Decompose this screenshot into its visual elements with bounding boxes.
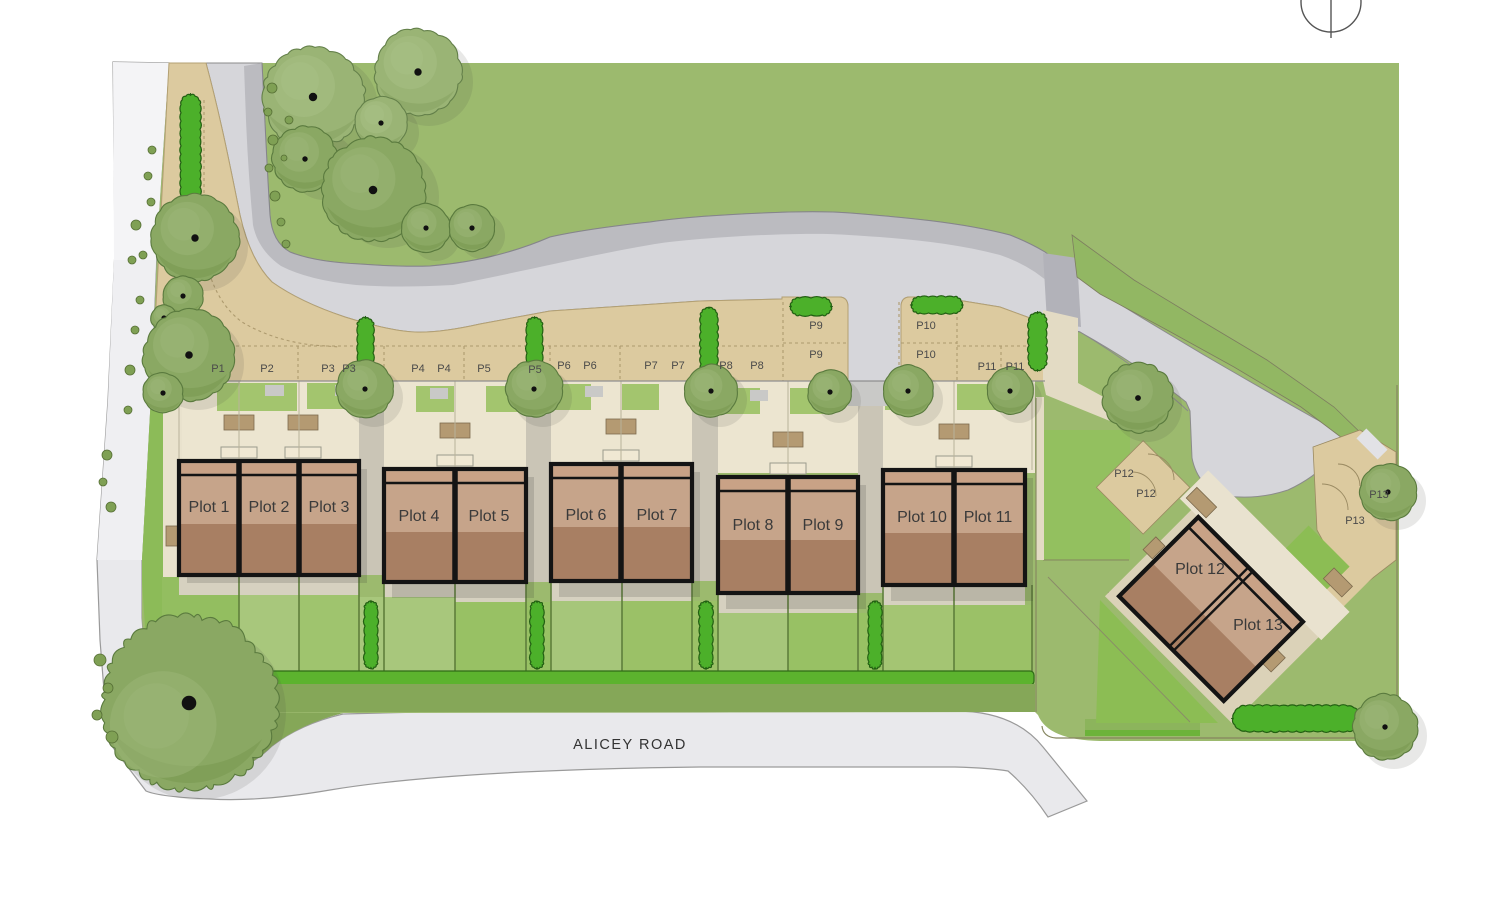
svg-text:P5: P5 — [477, 363, 490, 375]
svg-text:Plot 9: Plot 9 — [803, 517, 844, 534]
svg-text:Plot 2: Plot 2 — [249, 499, 290, 516]
svg-text:Plot 13: Plot 13 — [1233, 617, 1283, 634]
svg-text:Plot 5: Plot 5 — [469, 508, 510, 525]
svg-text:P4: P4 — [411, 363, 424, 375]
svg-text:P11: P11 — [978, 361, 997, 373]
svg-text:P11: P11 — [1006, 361, 1025, 373]
svg-text:P6: P6 — [557, 360, 570, 372]
svg-text:Plot 4: Plot 4 — [399, 508, 440, 525]
svg-text:P3: P3 — [321, 363, 334, 375]
svg-text:P12: P12 — [1136, 488, 1156, 500]
svg-text:P8: P8 — [719, 360, 732, 372]
svg-text:Plot 6: Plot 6 — [566, 507, 607, 524]
svg-text:P8: P8 — [750, 360, 763, 372]
svg-text:P3: P3 — [342, 363, 355, 375]
svg-text:P12: P12 — [1114, 468, 1134, 480]
svg-text:P13: P13 — [1369, 489, 1389, 501]
svg-text:P2: P2 — [260, 363, 273, 375]
svg-text:Plot 7: Plot 7 — [637, 507, 678, 524]
svg-text:P7: P7 — [644, 360, 657, 372]
svg-text:Plot 3: Plot 3 — [309, 499, 350, 516]
svg-text:Plot 8: Plot 8 — [733, 517, 774, 534]
svg-text:P13: P13 — [1345, 515, 1365, 527]
svg-text:Plot 11: Plot 11 — [964, 509, 1013, 526]
svg-text:P4: P4 — [437, 363, 450, 375]
svg-text:Plot 1: Plot 1 — [189, 499, 230, 516]
svg-text:P1: P1 — [211, 363, 224, 375]
svg-text:P5: P5 — [528, 364, 541, 376]
svg-text:P10: P10 — [916, 349, 936, 361]
svg-text:Plot 10: Plot 10 — [897, 509, 947, 526]
svg-text:ALICEY ROAD: ALICEY ROAD — [573, 737, 687, 753]
svg-text:P9: P9 — [809, 320, 822, 332]
svg-text:P9: P9 — [809, 349, 822, 361]
svg-text:P6: P6 — [583, 360, 596, 372]
svg-text:Plot 12: Plot 12 — [1175, 561, 1225, 578]
svg-text:P10: P10 — [916, 320, 936, 332]
svg-text:P7: P7 — [671, 360, 684, 372]
